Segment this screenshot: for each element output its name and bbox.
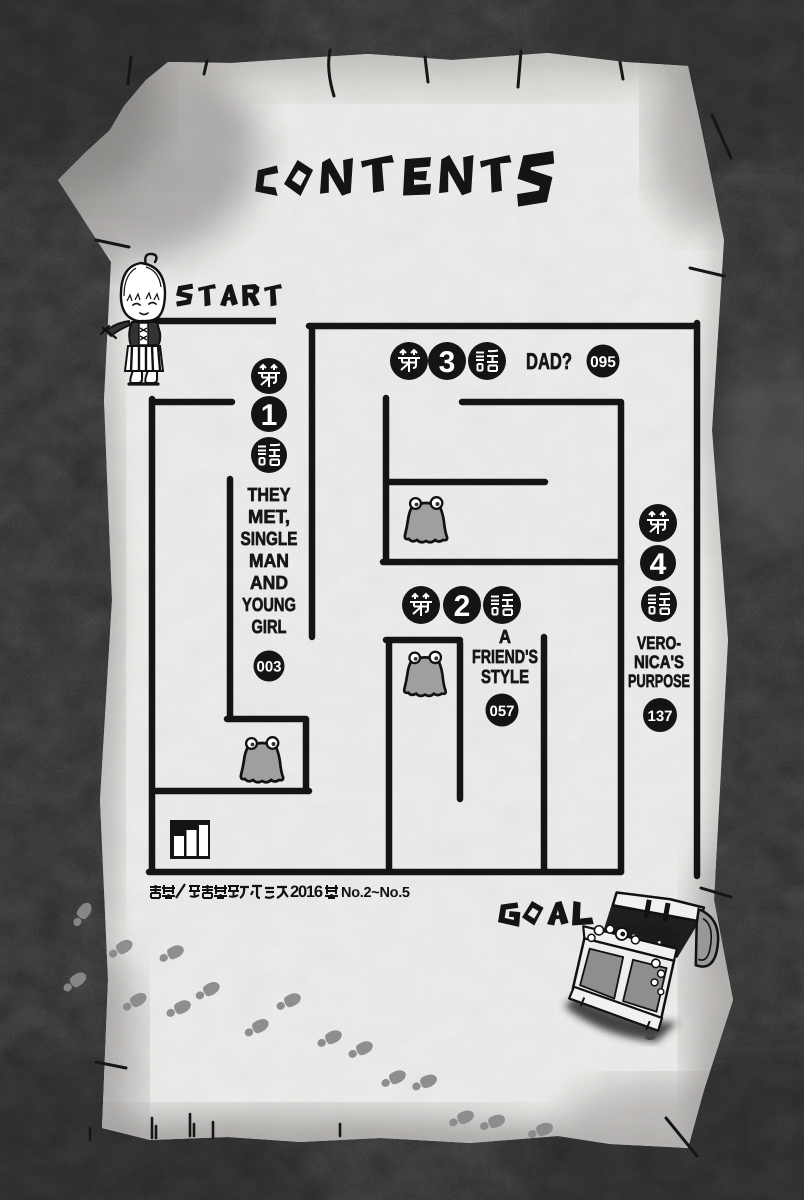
svg-text:YOUNG: YOUNG	[242, 595, 296, 616]
svg-text:MAN: MAN	[249, 551, 289, 572]
svg-text:GIRL: GIRL	[252, 617, 287, 638]
svg-text:PURPOSE: PURPOSE	[628, 671, 690, 691]
svg-text:THEY: THEY	[248, 485, 291, 506]
svg-text:095: 095	[590, 354, 616, 371]
svg-text:STYLE: STYLE	[481, 667, 529, 688]
svg-text:AND: AND	[250, 573, 288, 594]
svg-text:No.2~No.5: No.2~No.5	[341, 885, 410, 901]
svg-text:MET,: MET,	[248, 507, 290, 528]
svg-text:1: 1	[261, 399, 278, 432]
svg-text:SINGLE: SINGLE	[241, 529, 298, 550]
svg-text:3: 3	[439, 346, 456, 379]
svg-text:VERO-: VERO-	[637, 633, 681, 653]
svg-text:DAD?: DAD?	[526, 348, 572, 374]
svg-text:2: 2	[454, 590, 471, 623]
svg-text:NICA'S: NICA'S	[634, 652, 684, 672]
svg-text:2016: 2016	[290, 883, 323, 901]
svg-text:057: 057	[489, 703, 514, 720]
svg-text:003: 003	[256, 659, 281, 676]
svg-text:137: 137	[647, 708, 672, 725]
svg-text:4: 4	[650, 548, 667, 581]
svg-text:FRIEND'S: FRIEND'S	[472, 647, 538, 668]
svg-text:A: A	[499, 627, 511, 648]
